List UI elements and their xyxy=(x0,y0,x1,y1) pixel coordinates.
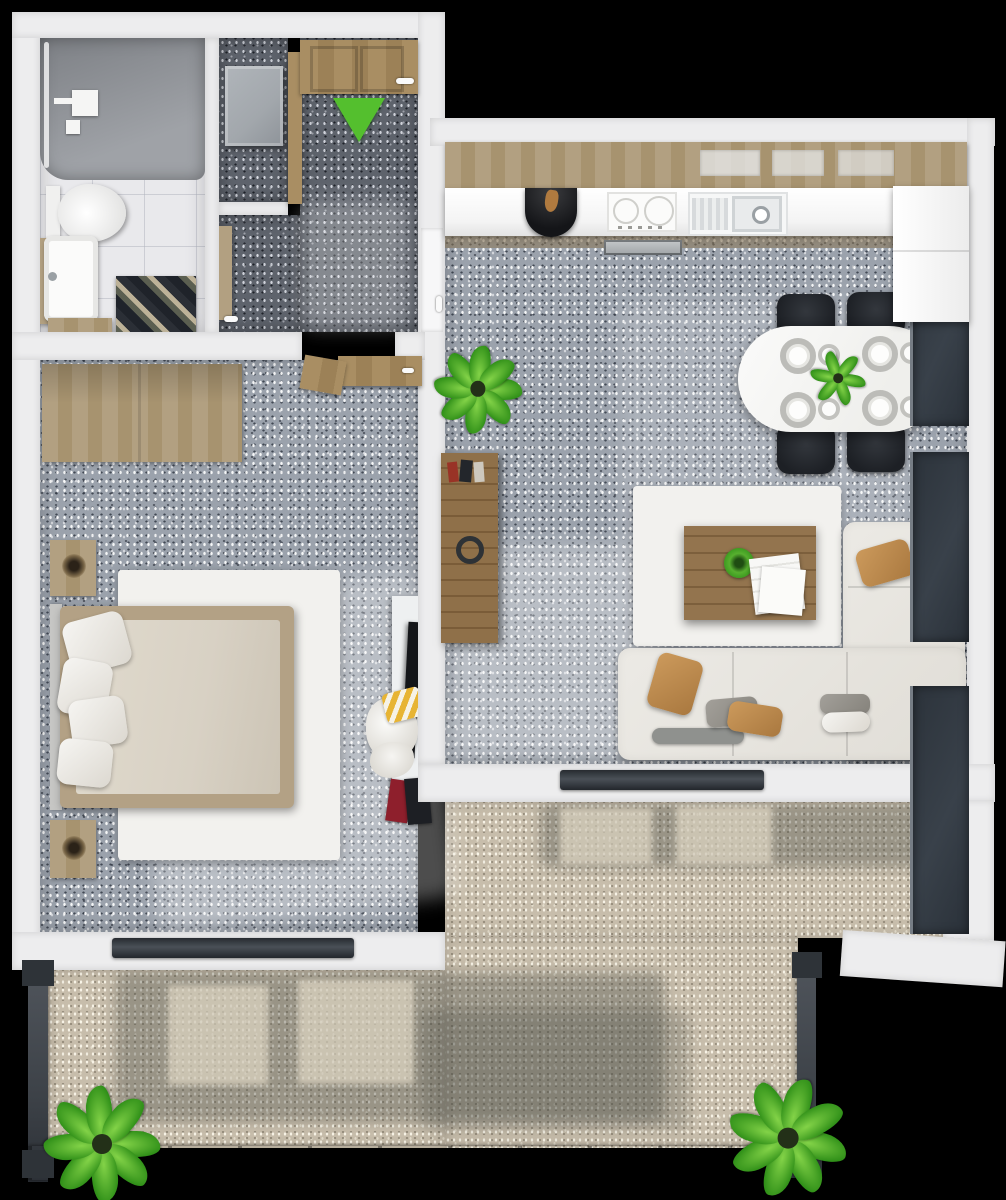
entrance-arrow-marker xyxy=(333,98,385,142)
railing-post xyxy=(22,960,54,986)
wall-top xyxy=(12,12,445,38)
wall-left xyxy=(12,12,40,970)
place-setting-plate xyxy=(780,392,816,428)
cabinet-glass-front xyxy=(838,150,894,176)
sink-faucet xyxy=(48,272,57,281)
shower-area xyxy=(40,38,205,180)
closet-cabinet xyxy=(225,66,283,146)
closet-divider xyxy=(219,202,288,215)
place-setting-plate xyxy=(862,390,898,426)
shower-glass xyxy=(44,42,49,168)
balcony-plant-left xyxy=(52,1094,152,1194)
wardrobe-shade xyxy=(42,364,242,462)
bathroom-door-handle xyxy=(224,316,238,322)
sliding-door-living xyxy=(560,770,764,790)
sofa-cushion-white xyxy=(822,711,871,733)
shower-arm xyxy=(54,98,74,104)
bedroom-door-handle xyxy=(402,368,414,373)
sideboard-books xyxy=(473,462,484,483)
cabinet-glass-front xyxy=(700,150,760,176)
magazines xyxy=(758,566,806,616)
table-lamp-icon xyxy=(62,554,86,578)
entrance-door-handle xyxy=(396,78,414,84)
railing-post xyxy=(792,952,822,978)
bedroom-door-wing xyxy=(299,355,346,396)
tall-cabinet-column xyxy=(893,186,969,322)
place-setting-plate xyxy=(780,338,816,374)
nook-side-cabinet xyxy=(219,226,232,320)
shower-head-icon xyxy=(72,90,98,116)
sideboard-books xyxy=(459,460,473,483)
living-door-handle xyxy=(436,296,442,312)
window-pane xyxy=(910,686,969,934)
oven-front xyxy=(604,240,682,255)
sideboard-books xyxy=(447,462,459,483)
sun-square xyxy=(168,985,268,1085)
kitchen-faucet xyxy=(752,206,770,224)
sun-patch xyxy=(300,200,410,330)
window-pane xyxy=(910,452,969,642)
balcony-plant-right xyxy=(736,1086,840,1190)
sink-drainboard xyxy=(692,198,728,230)
bed-pillow xyxy=(56,737,115,788)
entrance-door-panel xyxy=(360,46,404,92)
cooktop-burner xyxy=(613,198,639,224)
wall-bath-closet xyxy=(205,38,219,334)
place-setting-plate xyxy=(862,336,898,372)
floor-plant-living xyxy=(440,348,516,430)
living-door-leaf xyxy=(421,228,443,332)
column-seam xyxy=(893,250,969,252)
cabinet-glass-front xyxy=(772,150,824,176)
sun-square xyxy=(560,808,652,864)
sofa-armrest-pad xyxy=(652,728,744,744)
shower-control xyxy=(66,120,80,134)
cooktop-controls xyxy=(618,226,662,229)
decor-ring xyxy=(456,536,484,564)
centerpiece-plant xyxy=(814,354,862,402)
sun-square xyxy=(298,980,414,1084)
sun-square xyxy=(676,806,772,864)
shade-patch xyxy=(420,1010,690,1130)
wall-bedroom-top-left xyxy=(12,332,302,360)
table-lamp-icon xyxy=(62,836,86,860)
floor-plan-stage xyxy=(0,0,1006,1200)
cooktop-burner xyxy=(644,196,674,226)
entrance-door-panel xyxy=(310,46,358,92)
sliding-door-bedroom xyxy=(112,938,354,958)
